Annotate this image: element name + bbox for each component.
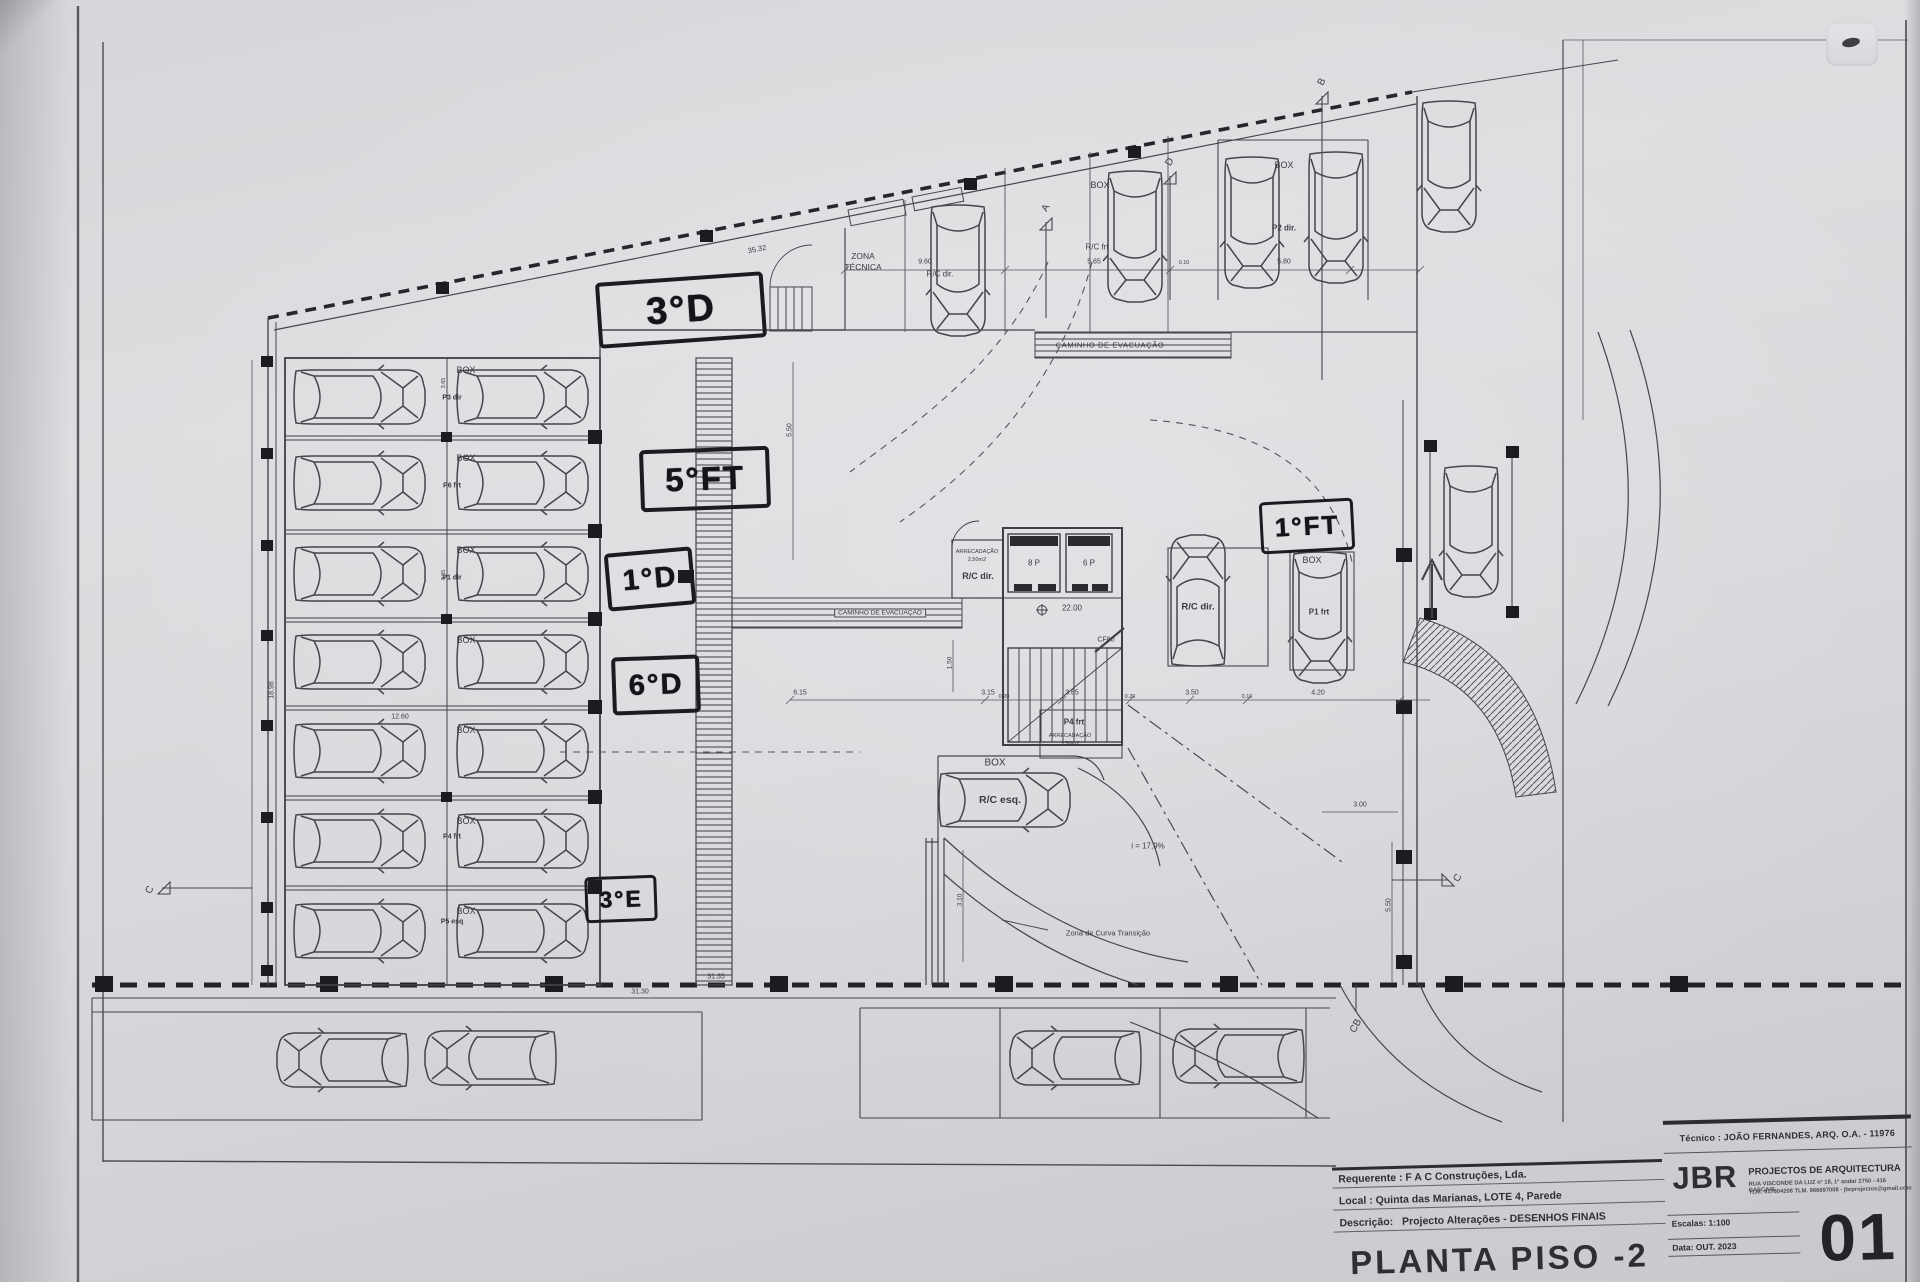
handwritten-unit-1ft: 1°FT [1259, 498, 1356, 555]
storage-area-250: 2,50m2 [968, 557, 986, 563]
dim-020b: 0.20 [1125, 694, 1136, 700]
stall-label-p6-frt: P6 frt [443, 483, 461, 490]
dim-010: 0.10 [1179, 260, 1190, 266]
storage-area-350: 3,50m2 [1061, 741, 1079, 747]
evacuation-path-label-top: CAMINHO DE EVACUAÇÃO [1056, 341, 1165, 350]
description-value: Projecto Alterações - DESENHOS FINAIS [1402, 1210, 1606, 1227]
dim-300: 3.00 [1353, 802, 1367, 809]
stall-label-rc-dir-car: R/C dir. [1181, 602, 1214, 613]
zona-tecnica-label-2: TÉCNICA [844, 262, 881, 272]
grid-marker-a: A [1040, 202, 1053, 213]
dim-1898: 18.98 [269, 681, 276, 699]
box-label: BOX [456, 725, 475, 735]
handwritten-unit-5ft: 5°FT [639, 446, 771, 512]
dim-550-left: 5.50 [787, 423, 794, 437]
handwritten-unit-1d: 1°D [604, 546, 697, 611]
dim-420: 4.20 [1311, 690, 1325, 697]
stall-label-rc-frt: R/C frt [1085, 243, 1108, 252]
stall-label-p2-dir: P2 dir. [1272, 224, 1296, 233]
dim-3135: 31.35 [707, 974, 725, 981]
date-row: Data: OUT. 2023 [1668, 1235, 1800, 1256]
dim-365: 3.65 [1065, 690, 1079, 697]
dim-580: 5.80 [1277, 259, 1291, 266]
grid-marker-c-left: C [143, 884, 156, 896]
plan-text-overlay: ZONA TÉCNICA CAMINHO DE EVACUAÇÃO CAMINH… [0, 0, 1920, 1282]
grid-marker-cb: CB [1348, 1017, 1364, 1034]
scale-row: Escalas: 1:100 [1667, 1211, 1799, 1230]
dim-565: 5.65 [1087, 259, 1101, 266]
stall-label-p1-frt: P1 frt [1309, 608, 1329, 617]
dim-615: 6.15 [793, 690, 807, 697]
dim-315: 3.15 [981, 690, 995, 697]
zona-tecnica-label-1: ZONA [851, 251, 875, 261]
ramp-slope-label: i = 17,9% [1131, 842, 1165, 851]
dim-010b: 0.10 [1242, 694, 1253, 700]
box-label: BOX [456, 906, 475, 916]
punch-hole-mark [1826, 22, 1878, 66]
handwritten-unit-3d: 3°D [595, 271, 767, 349]
box-label: BOX [1274, 160, 1293, 170]
stall-label-rc-dir-top: R/C dir. [927, 270, 954, 279]
dim-1260: 12.60 [391, 714, 409, 721]
grid-marker-b: B [1316, 76, 1329, 87]
level-label: 22.00 [1062, 604, 1082, 613]
box-label: BOX [984, 758, 1005, 769]
grid-marker-d: D [1163, 156, 1176, 168]
box-label: BOX [456, 453, 475, 463]
stall-dim-365: 3.65 [441, 378, 447, 389]
lift-6p-label: 6 P [1083, 559, 1095, 568]
dim-960: 9.60 [918, 259, 932, 266]
dim-350: 3.50 [1185, 690, 1199, 697]
evacuation-path-label-mid: CAMINHO DE EVACUAÇÃO [834, 609, 926, 618]
transition-curve-label: Zona de Curva Transição [1066, 929, 1150, 938]
box-label: BOX [456, 635, 475, 645]
sheet-number: 01 [1803, 1200, 1913, 1273]
stall-label-p5-esq: P5 esq [441, 919, 464, 926]
storage-label: ARRECADAÇÃO [956, 549, 998, 555]
box-label: BOX [456, 365, 475, 375]
firm-suffix: PROJECTOS DE ARQUITECTURA [1748, 1163, 1901, 1178]
project-info-column: Requerente : F A C Construções, Lda. Loc… [1332, 1159, 1665, 1282]
box-label: BOX [456, 816, 475, 826]
description-label: Descrição: [1339, 1216, 1393, 1229]
drawing-title: PLANTA PISO -2 [1344, 1236, 1655, 1282]
grid-marker-c-right: C [1451, 872, 1464, 884]
door-cf60-label: CF60 [1097, 637, 1114, 644]
box-label: BOX [1090, 180, 1109, 190]
box-label: BOX [1302, 555, 1321, 565]
stall-label-p4-frt: P4 frt [443, 834, 461, 841]
stall-label-rc-esq: R/C esq. [979, 794, 1021, 806]
dim-310: 3.10 [957, 894, 964, 907]
storage-label-2: ARRECADAÇÃO [1049, 733, 1091, 739]
dim-020: 0.20 [999, 694, 1010, 700]
handwritten-unit-6d: 6°D [611, 654, 701, 715]
firm-name: JBR [1672, 1159, 1738, 1197]
box-label: BOX [456, 545, 475, 555]
dim-150: 1.50 [947, 657, 954, 670]
photographed-floor-plan: ZONA TÉCNICA CAMINHO DE EVACUAÇÃO CAMINH… [0, 0, 1920, 1282]
stall-dim-305: 3.05 [441, 570, 447, 581]
title-block: Técnico : JOÃO FERNANDES, ARQ. O.A. - 11… [1331, 1112, 1915, 1282]
lift-8p-label: 8 P [1028, 559, 1040, 568]
storage-unit-rc-dir: R/C dir. [962, 571, 994, 581]
dim-3532: 35.32 [747, 243, 767, 255]
stall-label-p3-dir: P3 dir [442, 395, 461, 402]
dim-550-right: 5.50 [1386, 898, 1393, 912]
storage-unit-p4-frt: P4 frt [1064, 718, 1084, 727]
dim-3130: 31.30 [631, 989, 649, 996]
description-row: Descrição: Projecto Alterações - DESENHO… [1333, 1206, 1665, 1233]
handwritten-unit-3e: 3°E [584, 875, 658, 923]
